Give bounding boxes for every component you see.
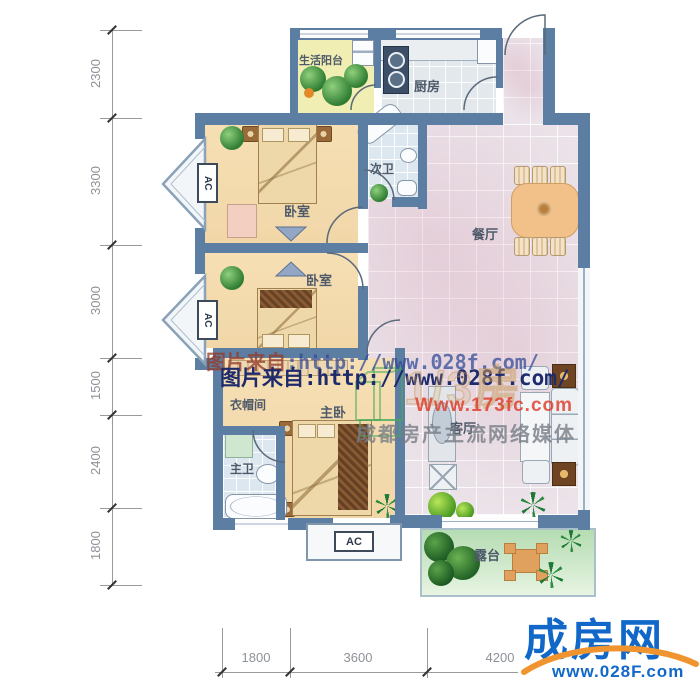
- wall: [200, 243, 368, 253]
- dim-ext: [100, 30, 142, 31]
- ac-unit-bottom: AC: [334, 531, 374, 552]
- washer-balcony: [352, 40, 374, 66]
- room-label-master: 主卧: [320, 402, 346, 421]
- terrace-plants: [428, 560, 454, 586]
- room-label-closet: 衣帽间: [230, 396, 266, 413]
- dim-value-left-1: 3300: [88, 151, 103, 211]
- dim-value-left-2: 3000: [88, 271, 103, 331]
- wall: [290, 28, 298, 118]
- dim-ext: [100, 415, 142, 416]
- pillow: [298, 424, 316, 438]
- room-label-bath1: 主卫: [230, 460, 254, 477]
- pillow: [317, 424, 335, 438]
- plant-bedroom2: [220, 266, 244, 290]
- dim-value-left-0: 2300: [88, 44, 103, 104]
- wall: [213, 426, 283, 435]
- site-logo-swoosh: [518, 598, 700, 700]
- dim-value-left-3: 1500: [88, 356, 103, 416]
- window-bath1: [235, 520, 288, 528]
- armchair: [522, 460, 550, 484]
- terrace-seat: [504, 543, 516, 554]
- plant-pot-orange: [304, 88, 314, 98]
- dining-table-ornament: [536, 201, 552, 217]
- room-label-terrace: 露台: [474, 545, 500, 564]
- wall: [538, 515, 590, 528]
- dim-line: [112, 30, 113, 585]
- sink-bath2: [400, 148, 417, 163]
- watermark-brand-url: Www.173fc.com: [415, 395, 573, 417]
- plant-bedroom1: [220, 126, 244, 150]
- dim-ext: [100, 245, 142, 246]
- ac-unit-bay1: AC: [197, 163, 218, 203]
- dim-ext: [100, 585, 142, 586]
- wall: [358, 197, 366, 207]
- plant-balcony: [344, 64, 368, 88]
- entry-floor: [503, 38, 543, 125]
- window-balcony: [300, 30, 368, 38]
- window-kitchen: [396, 30, 480, 38]
- wall: [374, 38, 381, 88]
- terrace-seat: [504, 570, 516, 581]
- window-east: [578, 268, 590, 510]
- site-logo-url: www.028F.com: [552, 662, 684, 682]
- floorplan-canvas: AC AC AC 生活阳台 厨房 次卫 餐厅 卧室 卧室 衣帽间 主卧 主卫 客…: [0, 0, 700, 700]
- room-label-bath2: 次卫: [370, 160, 394, 177]
- toilet-bath2: [397, 180, 417, 196]
- dining-chair: [514, 237, 530, 256]
- terrace-palm: [538, 562, 564, 588]
- watermark-media-line: 成都房产主流网络媒体: [356, 418, 576, 447]
- dim-value-left-5: 1800: [88, 516, 103, 576]
- room-label-bedroom1: 卧室: [284, 201, 310, 220]
- wall: [496, 38, 503, 88]
- dim-ext: [100, 508, 142, 509]
- dim-ext: [100, 358, 142, 359]
- wall: [276, 426, 285, 527]
- wall: [392, 197, 427, 207]
- nightstand: [242, 126, 259, 142]
- dim-ext: [100, 118, 142, 119]
- desk-bedroom1: [227, 204, 257, 238]
- nightstand: [315, 126, 332, 142]
- dim-value-left-4: 2400: [88, 431, 103, 491]
- dining-chair: [532, 237, 548, 256]
- ac-unit-bay2: AC: [197, 300, 218, 340]
- room-label-balcony: 生活阳台: [299, 52, 343, 68]
- room-label-kitchen: 厨房: [414, 76, 440, 95]
- dim-value-bottom-1: 3600: [328, 650, 388, 665]
- wall: [195, 113, 205, 139]
- plant-bath2: [370, 184, 388, 202]
- stove-burner: [388, 71, 405, 88]
- av-equipment: [429, 464, 457, 490]
- wall: [543, 28, 555, 125]
- side-table: [552, 462, 576, 486]
- wall: [578, 113, 590, 268]
- dim-value-bottom-0: 1800: [226, 650, 286, 665]
- stove-burner: [388, 52, 405, 69]
- dining-chair: [550, 237, 566, 256]
- blanket-bedroom2: [260, 290, 312, 308]
- terrace-seat: [536, 543, 548, 554]
- room-label-bedroom2: 卧室: [306, 270, 332, 289]
- pillow: [288, 128, 310, 142]
- dim-line: [215, 672, 562, 673]
- pillow: [262, 128, 284, 142]
- wall: [195, 113, 503, 125]
- room-label-dining: 餐厅: [472, 224, 498, 243]
- site-logo: 成房网 www.028F.com: [518, 598, 700, 700]
- window-terrace: [442, 517, 538, 526]
- terrace-palm: [560, 530, 582, 552]
